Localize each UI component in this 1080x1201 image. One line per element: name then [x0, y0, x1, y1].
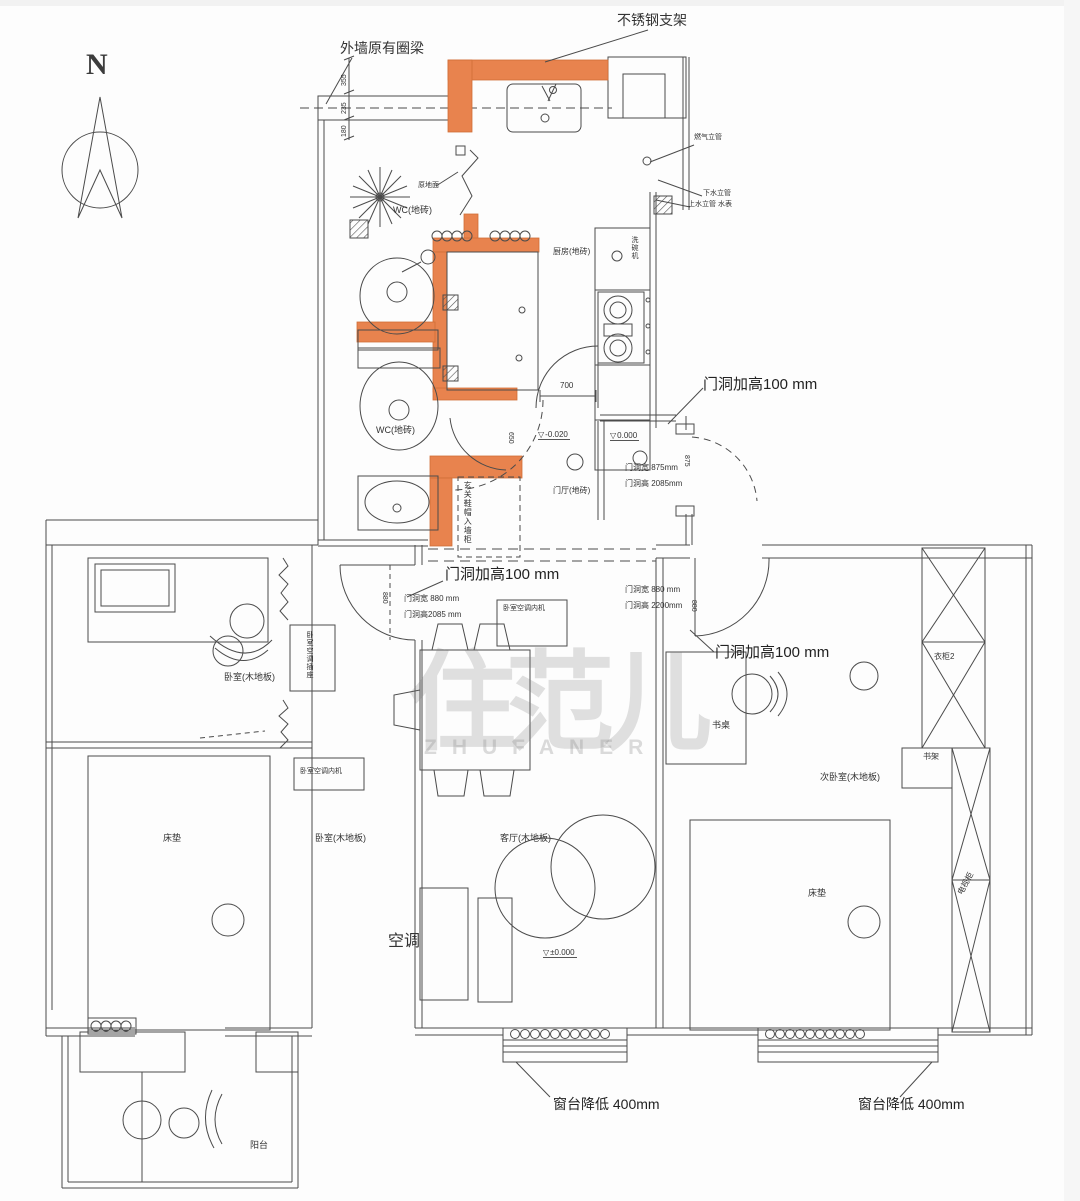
door3-width-label: 门洞宽 880 mm [625, 585, 680, 594]
entry-closet-label: 玄关鞋帽入墙柜 [463, 481, 472, 555]
gas-riser-label: 燃气立管 [694, 134, 722, 142]
compass-north-label: N [86, 48, 108, 82]
room-wc-lower-label: WC(地砖) [376, 425, 415, 435]
dim-235: 235 [341, 102, 349, 114]
bed-icon [690, 820, 890, 1030]
dim-180: 180 [341, 125, 349, 137]
orig-floor-label: 原地面 [418, 182, 439, 190]
level-triangle-icon [538, 430, 544, 439]
north-arrow-icon [62, 97, 138, 218]
basin-icon [358, 476, 438, 530]
room-kitchen-label: 厨房(地砖) [553, 247, 590, 256]
level-mark-entry: -0.020 [538, 430, 570, 440]
door1-width-label: 门洞宽 875mm [625, 463, 678, 472]
room-second-bedroom-label: 次卧室(木地板) [820, 772, 880, 782]
dim-880-right: 880 [689, 600, 697, 612]
room-bedroom2-label: 卧室(木地板) [315, 833, 366, 843]
door-raise-label-1: 门洞加高100 mm [703, 376, 817, 393]
dim-880-left: 880 [380, 592, 388, 604]
door2-width-label: 门洞宽 880 mm [404, 594, 459, 603]
sill-lower-label-left: 窗台降低 400mm [553, 1096, 660, 1112]
mattress-left-label: 床垫 [163, 833, 181, 843]
level-mark-living: ±0.000 [543, 948, 577, 958]
bracket-label: 不锈钢支架 [617, 12, 687, 28]
closet-rail-icon [279, 700, 288, 748]
door-raise-label-3: 门洞加高100 mm [715, 644, 829, 661]
room-living-label: 客厅(木地板) [500, 833, 551, 843]
mattress-right-label: 床垫 [808, 888, 826, 898]
ring-beam-label: 外墙原有圈梁 [340, 40, 424, 56]
room-bedroom1-label: 卧室(木地板) [224, 672, 275, 682]
dim-650: 650 [506, 432, 514, 444]
door1-height-label: 门洞高 2085mm [625, 479, 682, 488]
desk-label: 书桌 [712, 720, 730, 730]
room-balcony-label: 阳台 [250, 1140, 268, 1150]
dishwasher-label: 洗碗机 [630, 236, 638, 276]
ac-socket-label: 卧室空调插座 [305, 631, 313, 687]
floorplan-linework [0, 0, 1080, 1201]
dim-875: 875 [682, 455, 690, 467]
sill-lower-label-right: 窗台降低 400mm [858, 1096, 965, 1112]
dim-355: 355 [341, 74, 349, 86]
ac-indoor-left-label: 卧室空调内机 [300, 768, 342, 776]
closet-rail-icon [279, 558, 288, 620]
bookshelf-label: 书架 [923, 752, 939, 761]
level-triangle-icon [543, 948, 549, 957]
window-icon [758, 1028, 938, 1062]
level-triangle-icon [610, 431, 616, 440]
floorplan-page: 住范儿 ZHUFANER N 外墙原有圈梁 不锈钢支架 355 235 180 … [0, 0, 1080, 1201]
supply-riser-label: 上水立管 水表 [688, 201, 732, 209]
new-walls-highlight [357, 60, 608, 546]
door-raise-label-2: 门洞加高100 mm [445, 566, 559, 583]
watermark-en: ZHUFANER [424, 736, 658, 760]
aircon-label: 空调 [388, 933, 420, 951]
stove-icon [598, 292, 650, 363]
wardrobe-icon [922, 548, 985, 748]
door2-height-label: 门洞高2085 mm [404, 610, 461, 619]
room-wc-upper-label: WC(地砖) [393, 205, 432, 215]
drain-riser-label: 下水立管 [703, 190, 731, 198]
door3-height-label: 门洞高 2200mm [625, 601, 682, 610]
ac-indoor-center-label: 卧室空调内机 [503, 605, 545, 613]
wardrobe2-label: 衣柜2 [934, 652, 954, 661]
fixtures [62, 30, 990, 1148]
window-icon [503, 1028, 627, 1062]
room-hall-label: 门厅(地砖) [553, 486, 590, 495]
dim-700: 700 [560, 381, 573, 390]
level-mark-hall: 0.000 [610, 431, 639, 441]
pillow-icon [95, 564, 175, 612]
starburst-icon [350, 167, 410, 227]
